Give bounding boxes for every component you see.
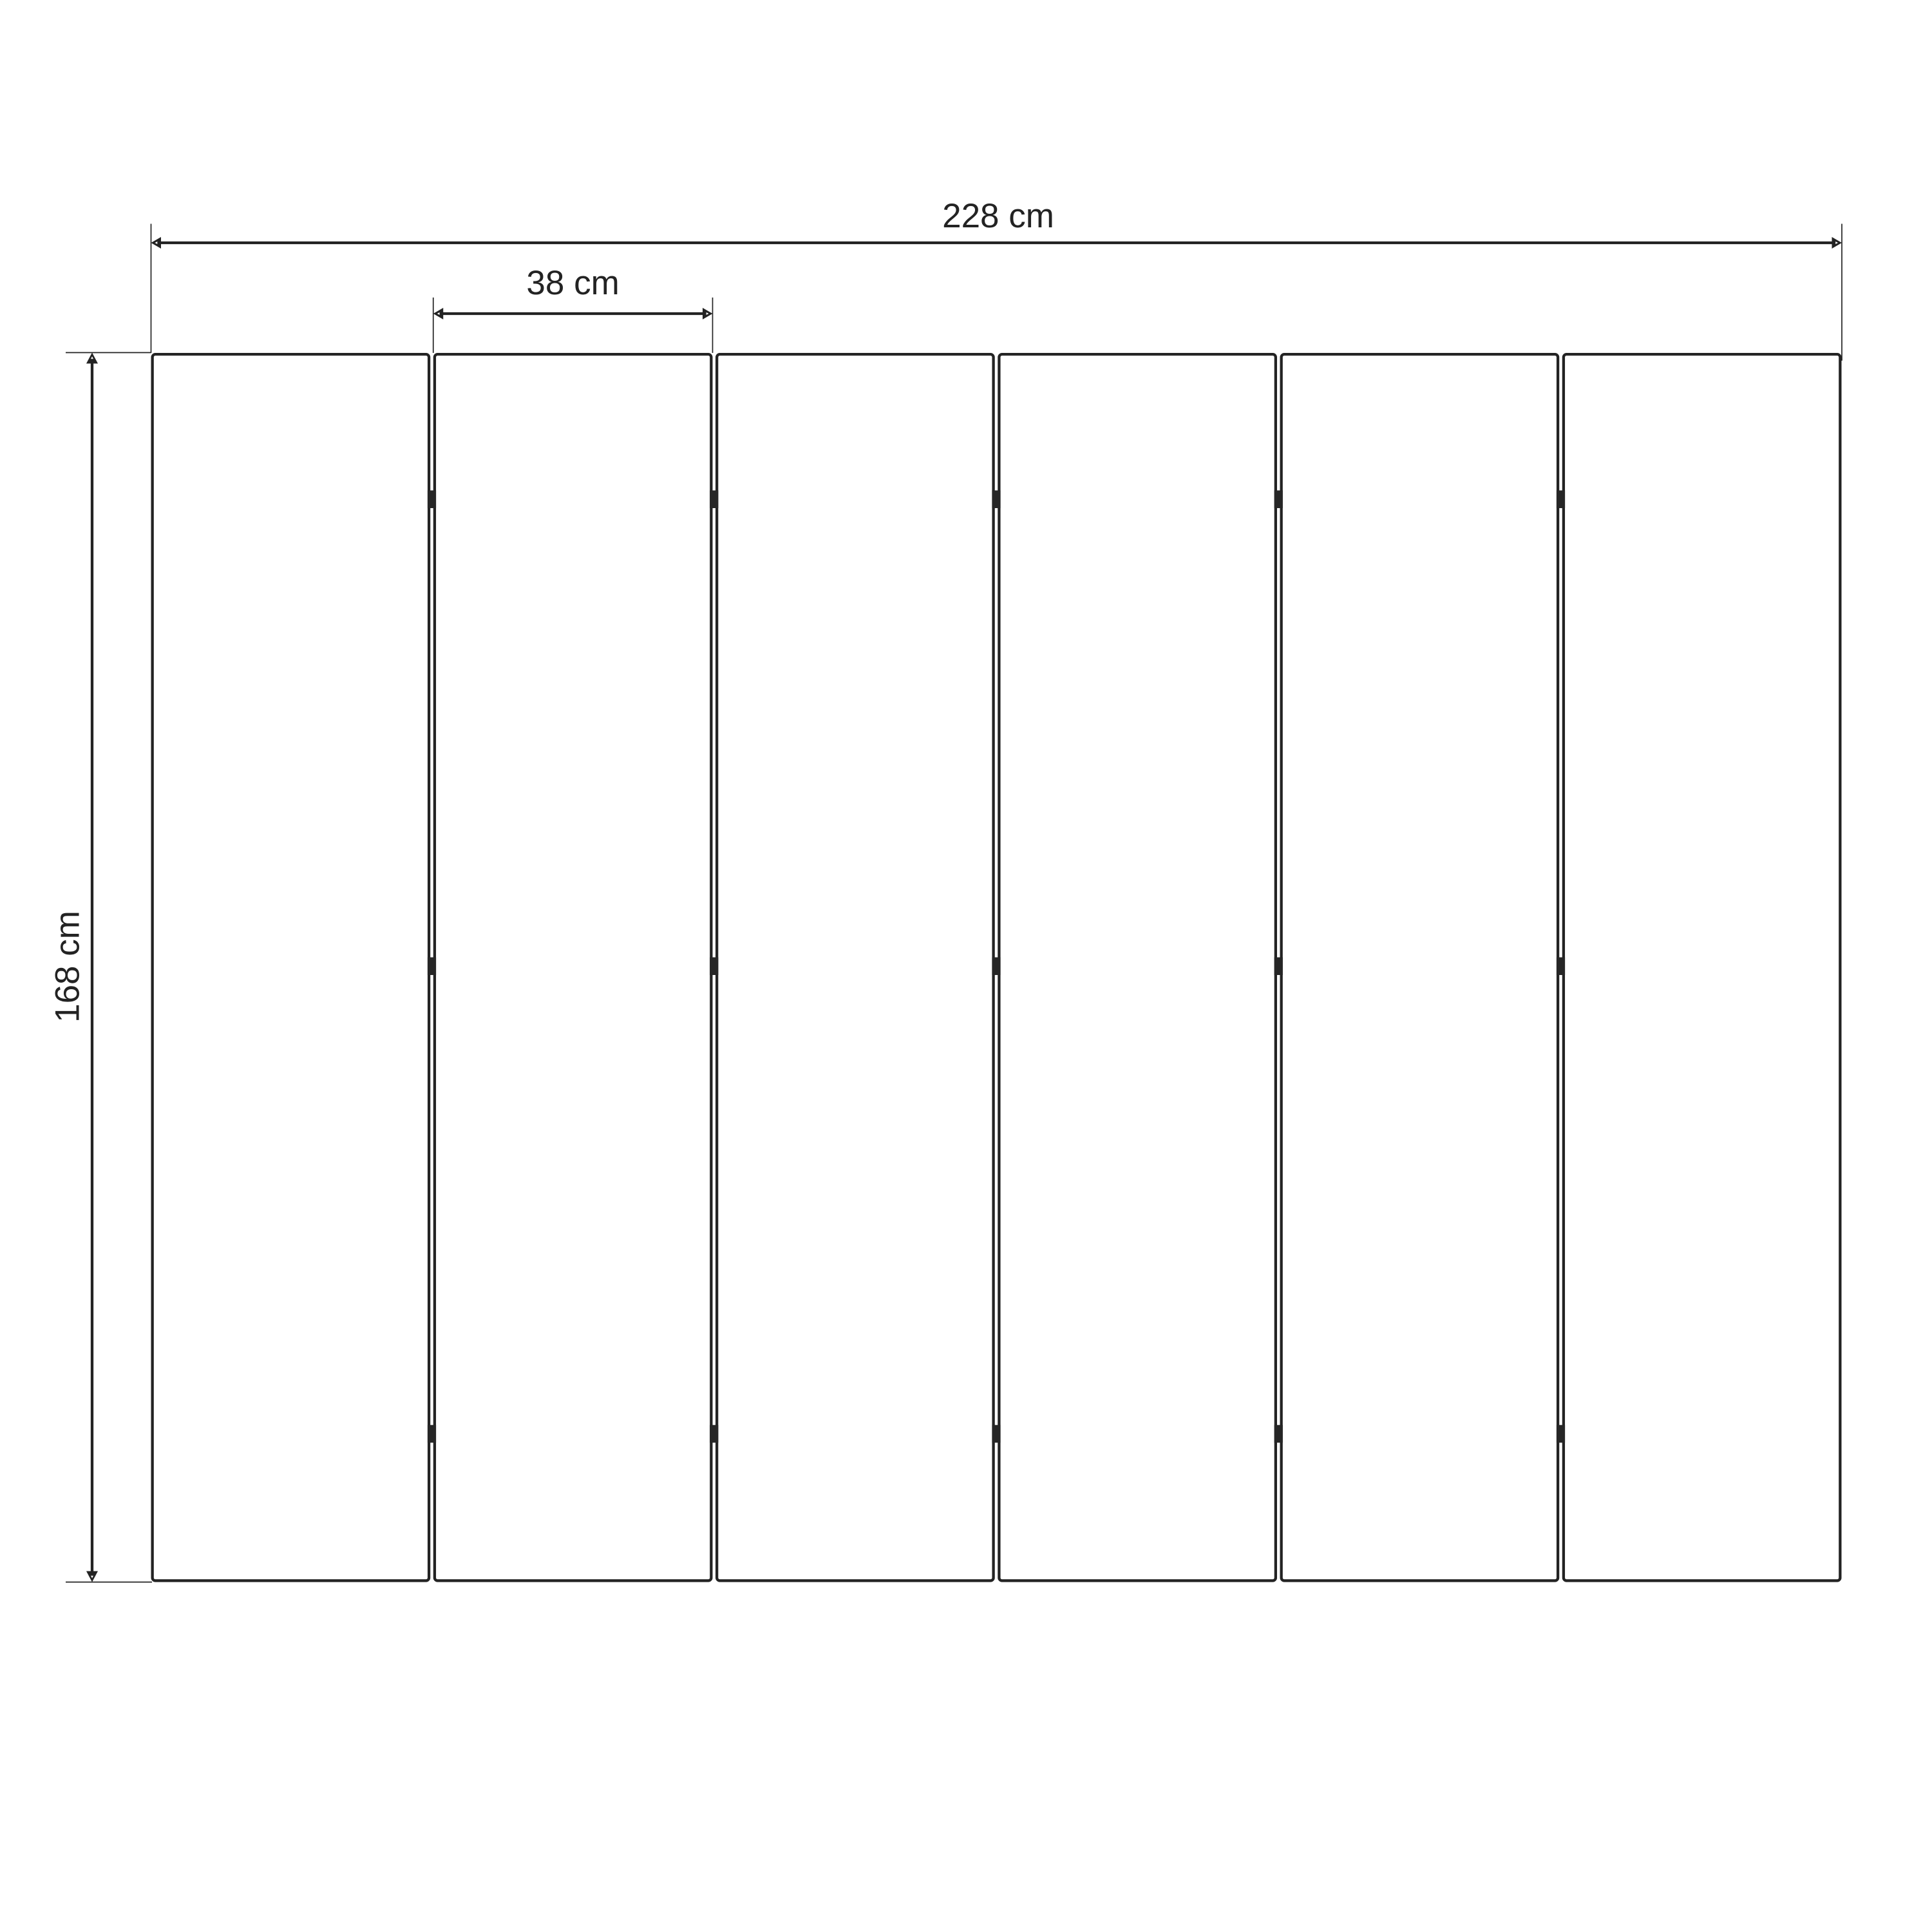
svg-text:228 cm: 228 cm — [942, 197, 1054, 235]
svg-text:38 cm: 38 cm — [526, 264, 619, 302]
svg-text:168 cm: 168 cm — [49, 911, 87, 1023]
